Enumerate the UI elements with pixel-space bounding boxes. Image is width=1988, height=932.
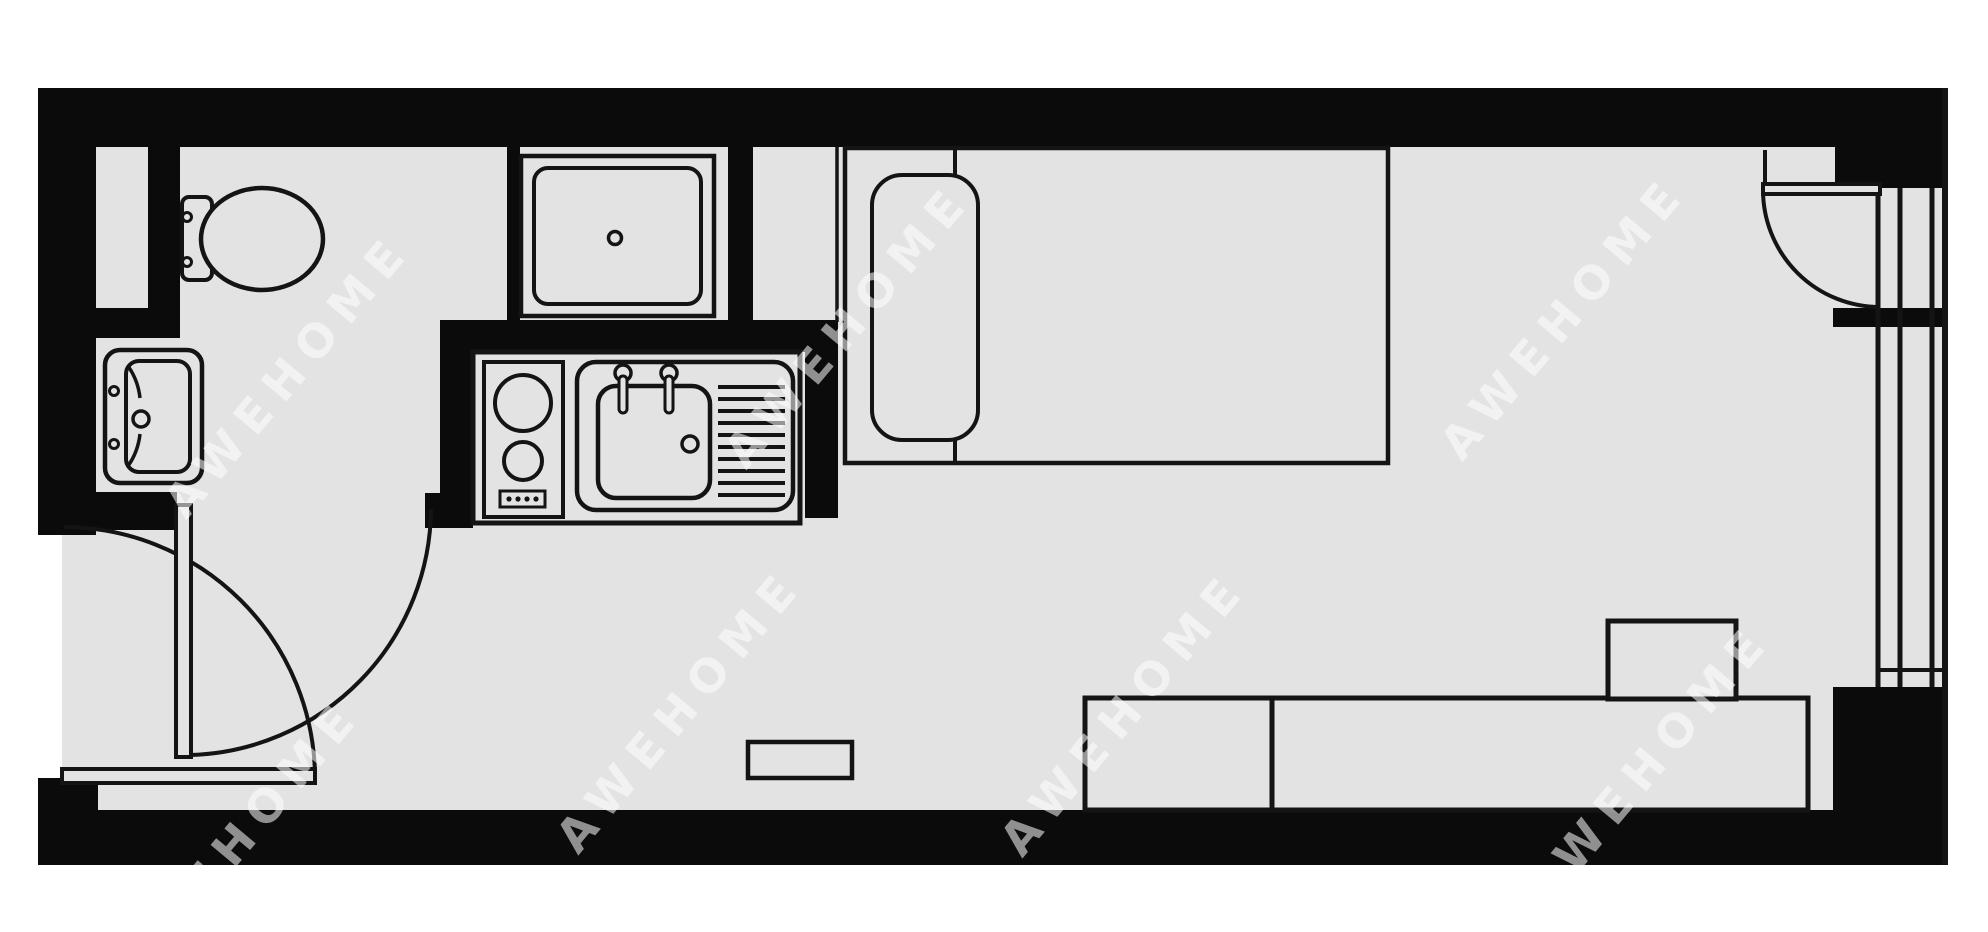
faucet-stem-left — [619, 376, 627, 413]
wall-bottom-right-block — [1833, 687, 1948, 865]
control-knob-2 — [515, 496, 520, 501]
wall-bottom — [38, 810, 1948, 865]
wall-bath-kitchen-partition — [507, 147, 520, 322]
toilet-hinge-bottom — [183, 258, 192, 267]
wall-kitchen-horizontal — [440, 320, 838, 352]
burner-large — [495, 375, 551, 431]
bathroom-sink-faucet — [133, 411, 149, 427]
bathroom-sink-tap-left-top — [110, 387, 119, 396]
toilet-hinge-top — [183, 213, 192, 222]
toilet — [182, 188, 323, 290]
washing-machine-knob — [609, 232, 622, 245]
cooktop — [484, 362, 563, 517]
washing-machine — [521, 156, 714, 316]
floor-plan-svg: AWEHOME AWEHOME AWEHOME AWEHOME AWEHOME … — [0, 0, 1988, 932]
wall-kitchen-right — [728, 147, 753, 322]
faucet-stem-right — [665, 376, 673, 413]
bathroom-sink-tap-left-bottom — [110, 440, 119, 449]
wall-bottom-left-step — [38, 778, 98, 865]
control-knob-3 — [524, 496, 529, 501]
floor-plan-canvas: AWEHOME AWEHOME AWEHOME AWEHOME AWEHOME … — [0, 0, 1988, 932]
burner-small — [504, 442, 542, 480]
wall-top — [38, 88, 1948, 147]
coffee-table — [748, 742, 852, 778]
control-knob-4 — [533, 496, 538, 501]
floor-entry-threshold — [62, 535, 96, 778]
control-knob-1 — [506, 496, 511, 501]
wall-left — [38, 88, 96, 535]
wall-niche-bottom — [96, 308, 180, 338]
wall-top-right-block — [1835, 88, 1948, 188]
wall-kitchen-left — [440, 352, 473, 493]
toilet-bowl — [201, 188, 323, 290]
inner-door-leaf — [176, 505, 191, 757]
sink-drain — [682, 436, 698, 452]
bed — [837, 147, 1388, 463]
balcony-door-leaf — [1763, 184, 1880, 194]
